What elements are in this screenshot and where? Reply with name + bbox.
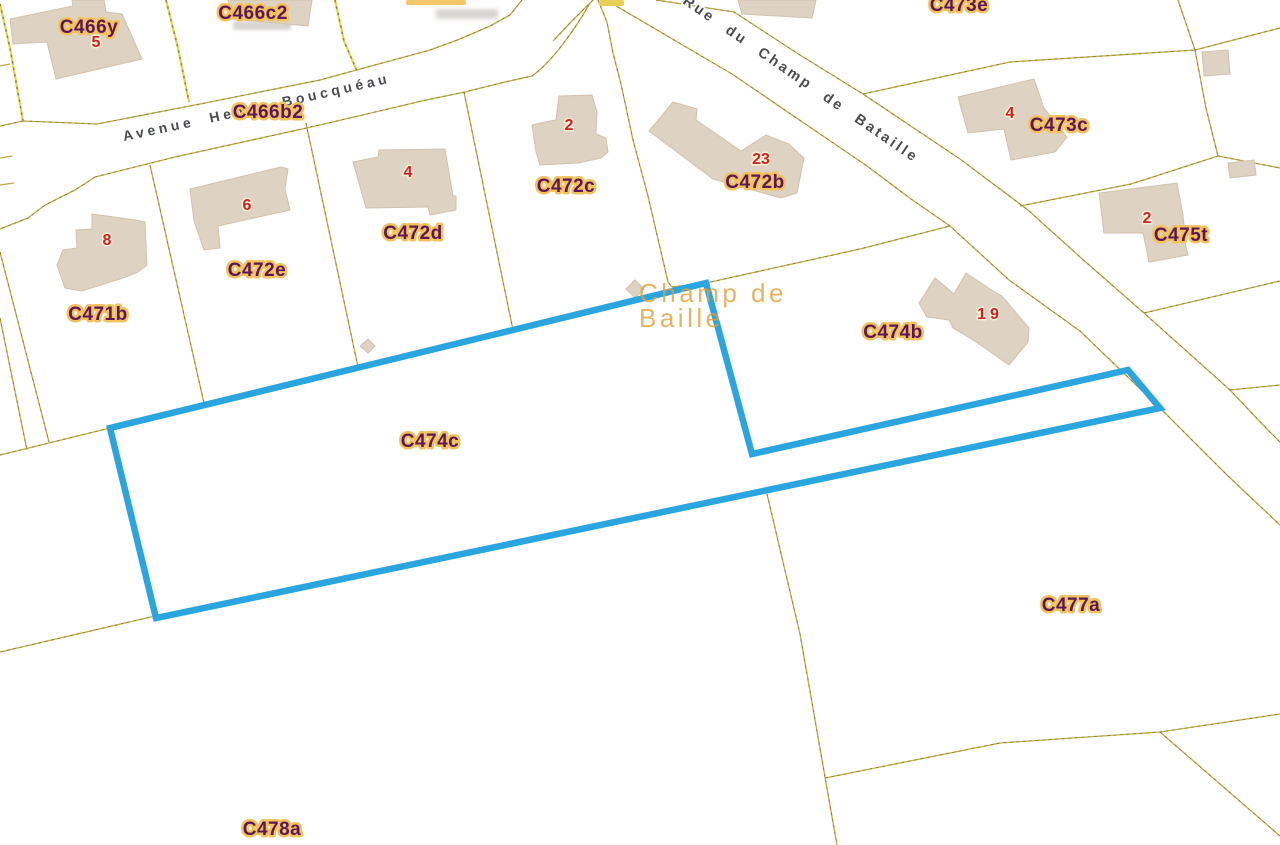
svg-text:C466y: C466y: [60, 17, 119, 38]
svg-text:C472d: C472d: [383, 223, 443, 244]
svg-text:C478a: C478a: [243, 819, 302, 840]
svg-text:19: 19: [977, 306, 1003, 323]
svg-text:5: 5: [92, 34, 101, 51]
svg-text:4: 4: [404, 164, 413, 181]
svg-text:2: 2: [565, 117, 574, 134]
svg-text:C471b: C471b: [68, 304, 128, 325]
svg-text:C472b: C472b: [725, 172, 785, 193]
svg-text:C473e: C473e: [930, 0, 989, 16]
svg-text:C472c: C472c: [537, 176, 596, 197]
svg-text:Baille: Baille: [639, 303, 724, 333]
svg-text:C474c: C474c: [401, 431, 460, 452]
svg-text:4: 4: [1006, 105, 1015, 122]
svg-text:23: 23: [752, 151, 770, 168]
svg-text:C466c2: C466c2: [218, 3, 288, 24]
svg-text:8: 8: [103, 232, 112, 249]
svg-text:6: 6: [243, 197, 252, 214]
svg-text:C477a: C477a: [1042, 595, 1101, 616]
svg-text:C466b2: C466b2: [233, 102, 304, 123]
svg-text:C473c: C473c: [1030, 115, 1089, 136]
svg-text:C475t: C475t: [1154, 225, 1208, 246]
svg-text:C474b: C474b: [863, 322, 923, 343]
svg-text:C472e: C472e: [228, 260, 287, 281]
svg-text:2: 2: [1143, 210, 1152, 227]
